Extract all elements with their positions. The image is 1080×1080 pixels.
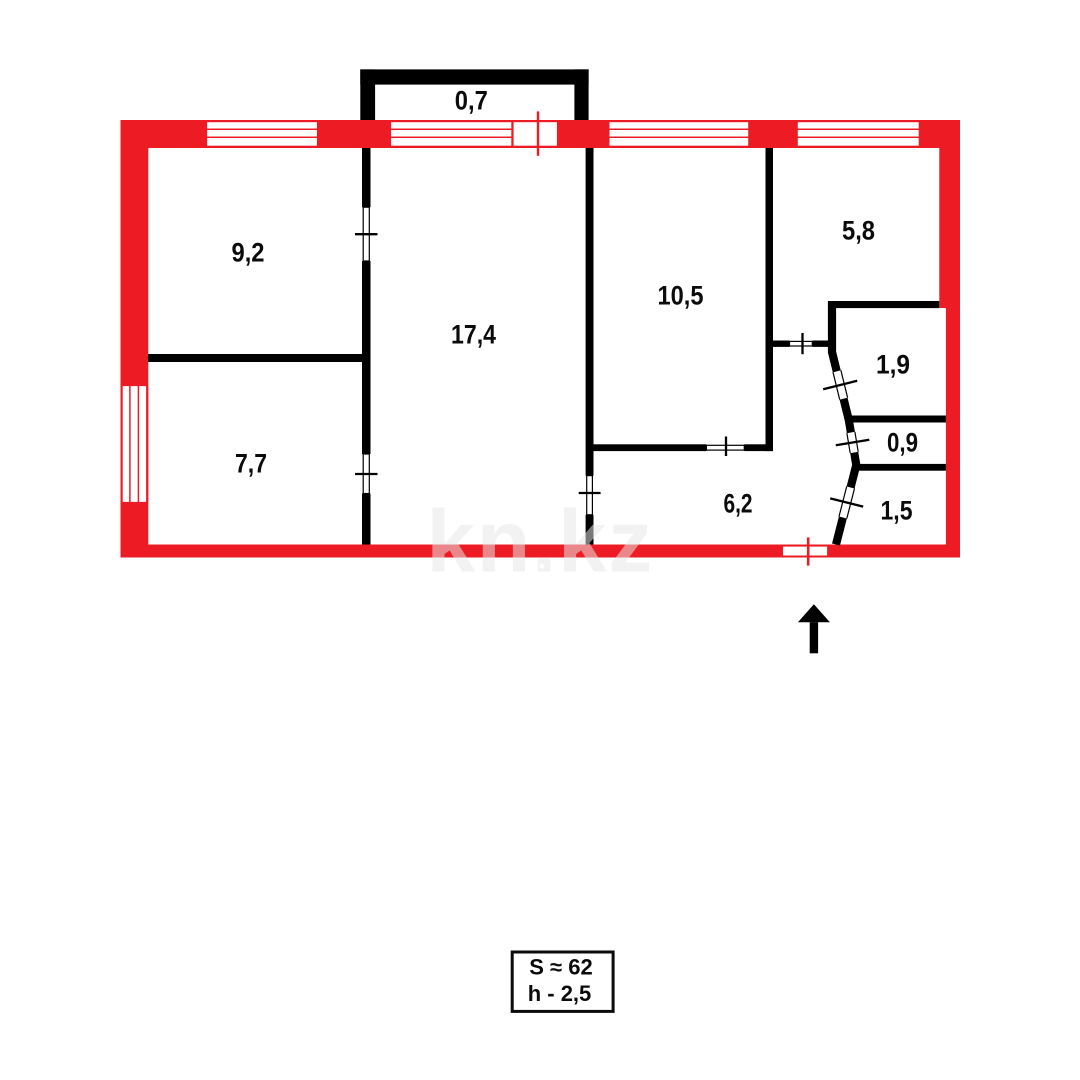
svg-text:10,5: 10,5 [658, 281, 704, 311]
svg-text:9,2: 9,2 [232, 238, 265, 268]
svg-text:0,9: 0,9 [887, 428, 918, 458]
svg-text:5,8: 5,8 [842, 216, 875, 246]
svg-text:6,2: 6,2 [724, 489, 753, 519]
svg-text:0,7: 0,7 [455, 86, 488, 116]
svg-text:7,7: 7,7 [235, 449, 267, 479]
svg-text:1,5: 1,5 [881, 496, 913, 526]
svg-text:h - 2,5: h - 2,5 [528, 981, 592, 1006]
svg-text:1,9: 1,9 [876, 350, 910, 380]
svg-text:kn.kz: kn.kz [426, 492, 654, 591]
svg-text:17,4: 17,4 [451, 320, 496, 350]
svg-text:S ≈ 62: S ≈ 62 [529, 954, 592, 979]
